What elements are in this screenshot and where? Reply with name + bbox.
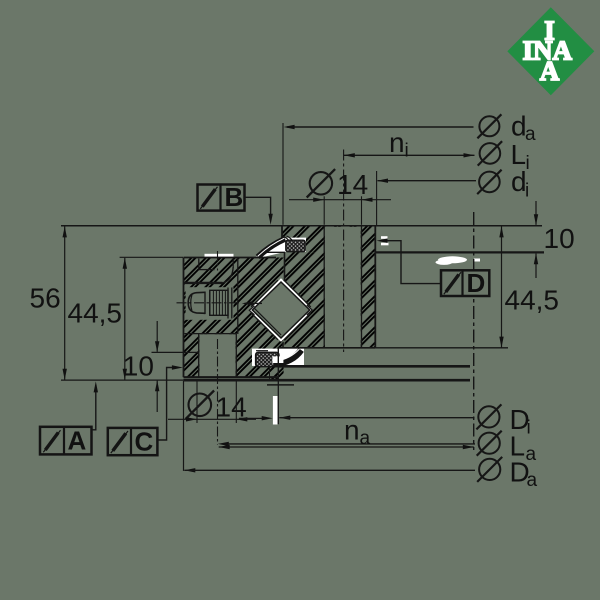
svg-text:a: a bbox=[360, 428, 371, 449]
svg-text:56: 56 bbox=[30, 283, 61, 314]
svg-text:a: a bbox=[527, 470, 538, 491]
svg-text:i: i bbox=[527, 418, 531, 439]
svg-text:n: n bbox=[389, 127, 405, 158]
svg-text:10: 10 bbox=[544, 223, 575, 254]
svg-text:a: a bbox=[525, 124, 536, 145]
svg-text:i: i bbox=[525, 180, 529, 201]
svg-text:44,5: 44,5 bbox=[505, 284, 560, 315]
svg-text:D: D bbox=[467, 268, 486, 298]
svg-text:A: A bbox=[540, 56, 560, 86]
svg-text:A: A bbox=[68, 426, 87, 456]
svg-text:44,5: 44,5 bbox=[68, 297, 123, 328]
svg-text:B: B bbox=[225, 182, 244, 212]
svg-text:10: 10 bbox=[123, 351, 154, 382]
svg-text:n: n bbox=[344, 415, 360, 446]
svg-text:C: C bbox=[135, 427, 154, 457]
svg-text:14: 14 bbox=[337, 169, 368, 200]
svg-text:i: i bbox=[405, 141, 409, 162]
